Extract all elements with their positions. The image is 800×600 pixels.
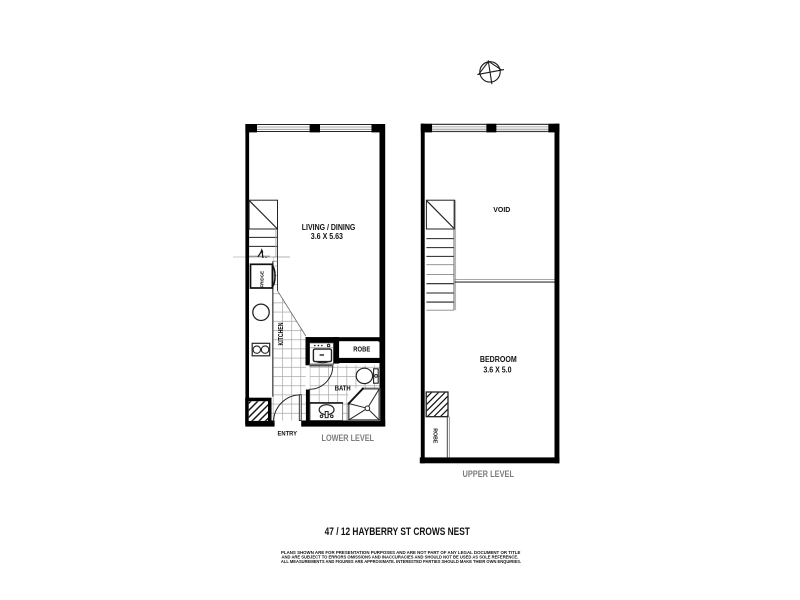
svg-text:LOWER LEVEL: LOWER LEVEL — [322, 433, 375, 444]
svg-text:ROBE: ROBE — [353, 347, 370, 354]
svg-text:BATH: BATH — [335, 386, 351, 393]
svg-text:ROBE: ROBE — [432, 428, 438, 443]
svg-text:47 / 12 HAYBERRY ST CROWS NEST: 47 / 12 HAYBERRY ST CROWS NEST — [325, 526, 471, 538]
svg-text:ENTRY: ENTRY — [278, 432, 298, 438]
svg-text:LIVING / DINING: LIVING / DINING — [302, 223, 356, 232]
svg-text:ALL MEASUREMENTS AND FIGURES A: ALL MEASUREMENTS AND FIGURES ARE APPROXI… — [281, 559, 521, 564]
svg-text:UPPER LEVEL: UPPER LEVEL — [463, 469, 515, 480]
svg-text:3.6 X 5.0: 3.6 X 5.0 — [483, 366, 512, 375]
svg-text:VOID: VOID — [493, 205, 511, 214]
svg-text:FRIDGE: FRIDGE — [260, 271, 265, 288]
svg-text:BEDROOM: BEDROOM — [480, 355, 517, 364]
svg-text:KITCHEN: KITCHEN — [278, 323, 285, 346]
svg-text:3.6 X 5.63: 3.6 X 5.63 — [311, 232, 344, 241]
